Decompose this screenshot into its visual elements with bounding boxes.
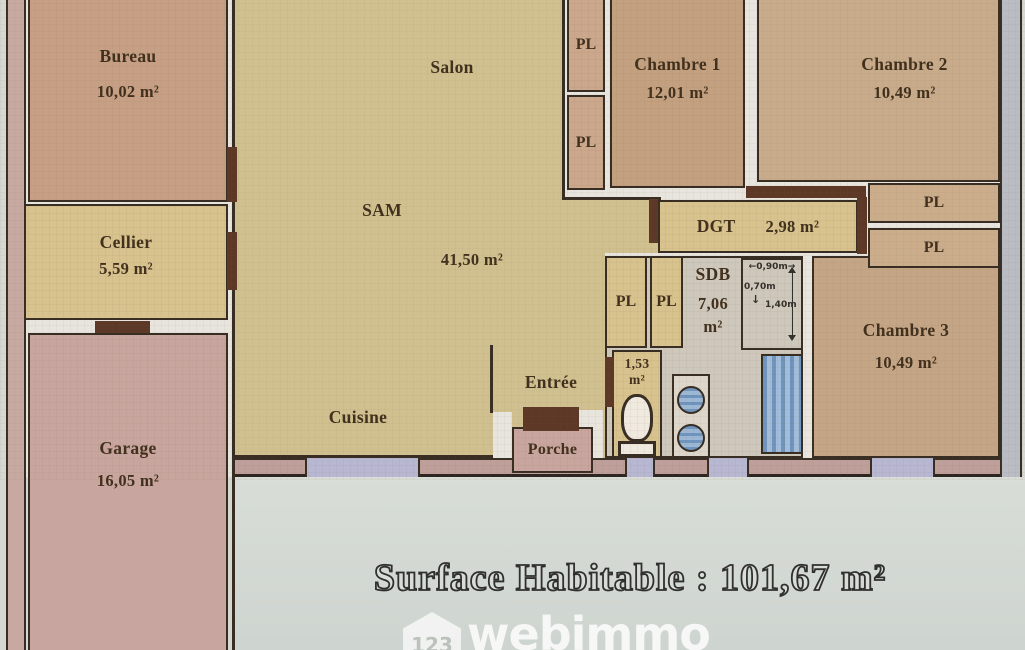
closet-pl: PL xyxy=(650,256,683,348)
room-dgt: DGT 2,98 m² xyxy=(658,200,858,253)
closet-pl: PL xyxy=(868,228,1000,268)
door xyxy=(649,199,658,243)
door xyxy=(523,407,579,431)
wall-patch xyxy=(493,412,512,458)
room-sam-area: 41,50 m² xyxy=(402,250,542,270)
room-area: 1,53 xyxy=(625,356,650,372)
room-bureau: Bureau 10,02 m² xyxy=(28,0,228,202)
sink xyxy=(677,424,705,452)
door xyxy=(227,232,237,290)
room-label: Chambre 1 xyxy=(634,54,720,75)
closet-pl: PL xyxy=(605,256,647,348)
room-label: Bureau xyxy=(100,46,157,67)
room-cellier: Cellier 5,59 m² xyxy=(24,204,228,320)
window xyxy=(625,456,655,479)
door xyxy=(857,197,867,254)
room-area: 2,98 m² xyxy=(766,217,820,237)
room-label: Porche xyxy=(528,441,578,459)
room-label: Chambre 2 xyxy=(861,54,947,75)
room-garage: Garage 16,05 m² xyxy=(28,333,228,650)
shower-dimension-box: ←0,90m→ 0,70m ↓ 1,40m xyxy=(741,258,803,350)
surface-habitable-label: Surface Habitable : 101,67 m² xyxy=(235,556,1025,600)
room-label: Garage xyxy=(99,438,156,459)
room-label: Chambre 3 xyxy=(863,320,949,341)
window xyxy=(870,456,935,479)
room-area-unit: m² xyxy=(629,372,645,388)
house-icon: 123 xyxy=(403,612,461,650)
dim-depth-label: 0,70m xyxy=(744,282,776,292)
exterior-wall-right xyxy=(1000,0,1022,477)
door xyxy=(227,147,237,202)
toilet-icon xyxy=(621,394,653,442)
room-chambre1: Chambre 1 12,01 m² xyxy=(610,0,745,188)
room-area: 5,59 m² xyxy=(99,259,153,279)
door xyxy=(605,357,614,407)
room-area: 10,02 m² xyxy=(97,82,159,102)
floor-plan-canvas: Bureau 10,02 m² Cellier 5,59 m² Garage 1… xyxy=(0,0,1025,650)
door xyxy=(746,186,866,198)
room-porche: Porche xyxy=(512,427,593,473)
interior-wall xyxy=(232,0,235,650)
room-area: 16,05 m² xyxy=(97,471,159,491)
closet-pl: PL xyxy=(868,183,1000,223)
room-salon-floor xyxy=(235,0,565,202)
room-chambre2: Chambre 2 10,49 m² xyxy=(757,0,1000,182)
interior-wall xyxy=(565,197,661,200)
closet-pl: PL xyxy=(567,95,605,190)
hallway-passage-floor xyxy=(560,200,658,253)
room-area: 12,01 m² xyxy=(646,83,708,103)
interior-wall xyxy=(562,0,565,200)
sink xyxy=(677,386,705,414)
arrow-down-icon: ↓ xyxy=(751,293,760,306)
closet-pl: PL xyxy=(567,0,605,92)
room-salon-label: Salon xyxy=(392,57,512,78)
vertical-dimension-arrow xyxy=(792,268,794,340)
exterior-wall-left xyxy=(6,0,26,650)
interior-wall xyxy=(232,455,493,458)
room-entree-label: Entrée xyxy=(496,372,606,393)
room-cuisine-label: Cuisine xyxy=(288,407,428,428)
interior-wall xyxy=(490,345,493,413)
webimmo-watermark: 123 webimmo xyxy=(403,612,710,650)
watermark-brand: webimmo xyxy=(467,612,710,650)
room-area: 10,49 m² xyxy=(875,353,937,373)
window xyxy=(707,456,749,479)
window xyxy=(305,456,420,479)
room-chambre3: Chambre 3 10,49 m² xyxy=(812,256,1000,458)
room-label: DGT xyxy=(697,216,736,237)
door xyxy=(95,321,150,333)
room-area: 10,49 m² xyxy=(873,83,935,103)
room-label: Cellier xyxy=(100,232,153,253)
bathtub xyxy=(761,354,803,454)
toilet-tank-icon xyxy=(618,441,656,457)
room-sam-label: SAM xyxy=(322,200,442,221)
